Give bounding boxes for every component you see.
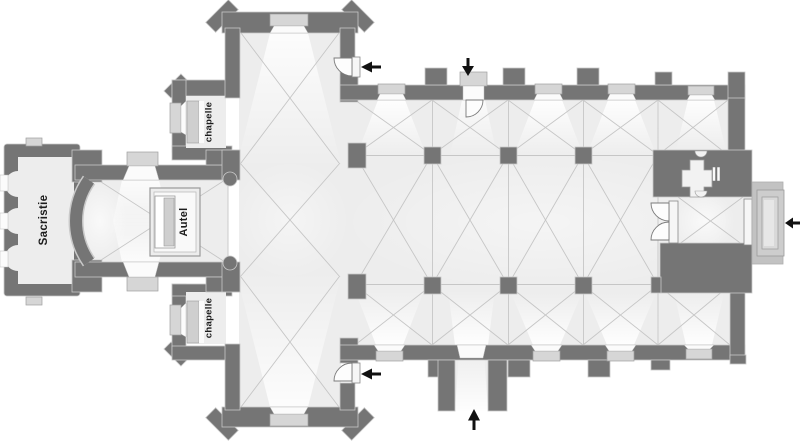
sacristy-window	[0, 175, 8, 191]
portal-door	[744, 199, 752, 245]
chapel-window	[181, 101, 186, 135]
chapel-window	[170, 103, 181, 133]
church-floor-plan: Sacristie Autel chapelle chapelle	[0, 0, 800, 443]
nave-window	[374, 345, 405, 351]
column	[575, 147, 592, 164]
sacristy-window	[26, 138, 42, 146]
altar-label: Autel	[178, 208, 190, 237]
church-floor-plan-page: Sacristie Autel chapelle chapelle	[0, 0, 800, 443]
stair-slit	[717, 167, 720, 181]
transept-south-window	[270, 414, 308, 426]
buttress	[588, 360, 610, 377]
chapel-window	[181, 303, 186, 337]
nave-window	[531, 345, 562, 351]
corner-buttress	[730, 355, 746, 364]
nave-window	[684, 345, 714, 349]
chapel-retable	[187, 301, 199, 343]
nave-window	[607, 351, 634, 361]
nave-window	[376, 351, 403, 361]
sacristy-window	[0, 251, 8, 267]
nave-window	[607, 94, 636, 100]
south-porch-entrance-arrow	[468, 409, 480, 430]
east-wall-north	[728, 98, 745, 152]
nave-window	[377, 94, 406, 100]
nave-window	[608, 84, 635, 94]
sacristy-window	[0, 213, 8, 229]
transept-north-window	[270, 14, 308, 26]
column	[424, 147, 441, 164]
choir-north-window	[123, 166, 159, 180]
column	[500, 147, 517, 164]
buttress	[508, 360, 530, 377]
sacristy-window	[26, 297, 42, 305]
buttress	[425, 68, 447, 85]
nave-window	[688, 86, 714, 95]
south-transept-entrance-arrow	[361, 369, 381, 380]
buttress	[503, 68, 525, 85]
buttress	[651, 360, 670, 370]
corner-buttress	[728, 72, 745, 100]
north-transept-entrance-arrow	[361, 62, 381, 73]
chapel-window	[170, 305, 181, 335]
nave-window	[687, 95, 715, 100]
altar-retable	[164, 198, 174, 246]
respond-pier	[348, 274, 366, 299]
portal-threshold	[764, 200, 774, 246]
buttress	[655, 72, 672, 85]
sacristy-label: Sacristie	[38, 195, 50, 246]
east-wall-south	[730, 290, 745, 358]
transept-north-window	[270, 26, 308, 33]
choir-south-window	[127, 277, 158, 291]
south-chapel	[164, 284, 232, 366]
altar	[150, 188, 200, 256]
column	[575, 277, 592, 294]
chapel-retable	[187, 101, 199, 143]
nave-window	[686, 349, 712, 359]
choir-south-window	[123, 262, 159, 277]
south-chapel-label: chapelle	[204, 298, 215, 338]
tower-south-mass	[660, 243, 752, 293]
north-chapel-label: chapelle	[204, 102, 215, 142]
nave-window	[534, 94, 563, 100]
choir-north-window	[127, 152, 158, 166]
buttress	[577, 68, 599, 85]
east-portal-entrance-arrow	[785, 218, 800, 229]
east-portal	[752, 182, 784, 264]
nave-window	[533, 351, 560, 361]
stair-slit	[713, 167, 716, 181]
transept-south-window	[270, 407, 308, 414]
nave-window	[378, 84, 405, 94]
nave-window	[535, 84, 562, 94]
north-chapel	[164, 74, 232, 160]
column	[424, 277, 441, 294]
column	[500, 277, 517, 294]
respond-pier	[348, 143, 366, 168]
nave-window	[605, 345, 636, 351]
